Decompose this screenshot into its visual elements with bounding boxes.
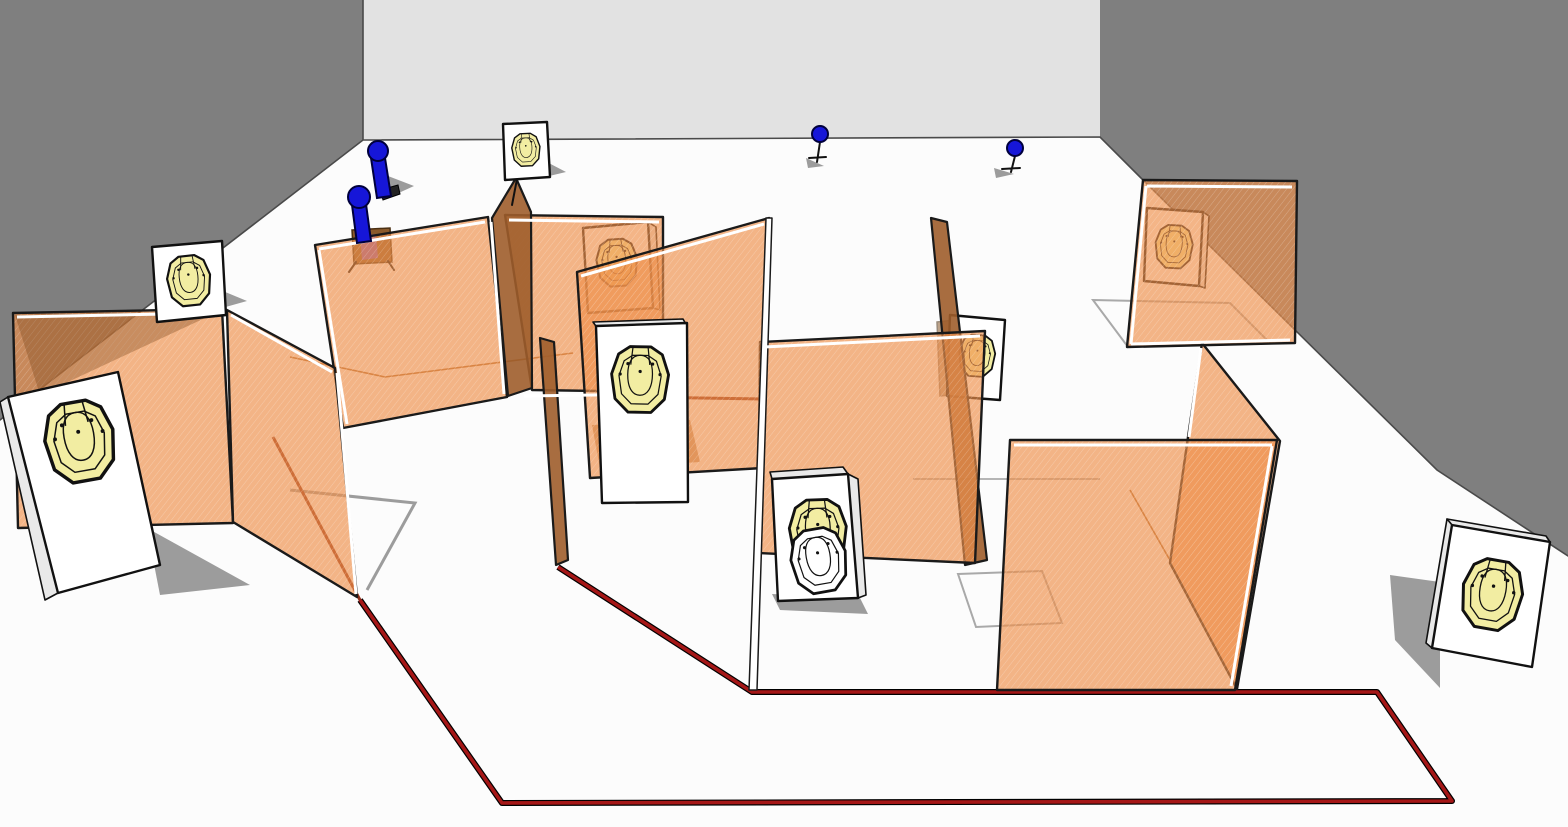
stage-3d-viewport[interactable] [0,0,1568,827]
silhouette-center-front [611,346,669,413]
silhouette-top-center [511,133,541,167]
stage-render-canvas[interactable] [0,0,1568,827]
mini-popper-right [1007,140,1023,156]
mini-popper-center [812,126,828,142]
popper-large-upper-head [368,141,388,161]
wall-right-upper [1127,180,1297,347]
popper-large-lower-head [348,186,370,208]
wall-right-lower-front [997,440,1277,690]
room-back-wall [363,0,1100,140]
